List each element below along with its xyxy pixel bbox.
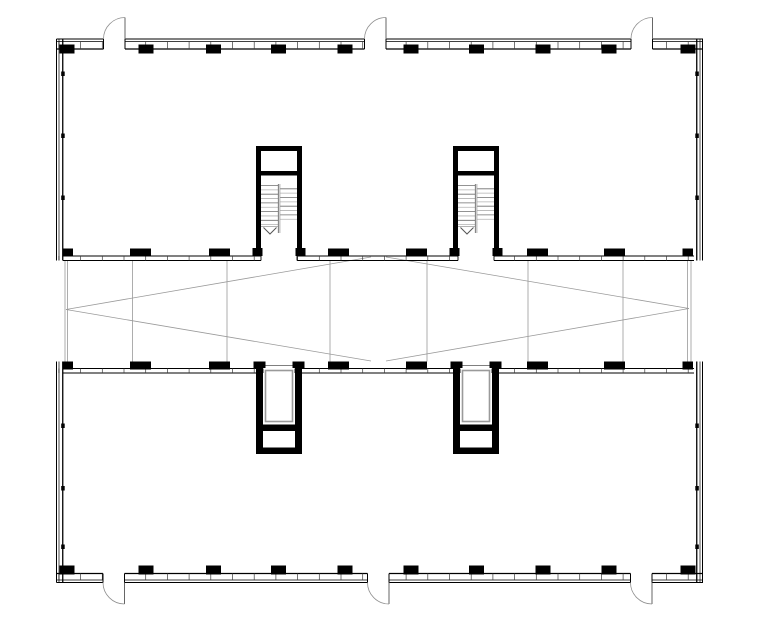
bottom-wing-north-column-pier — [63, 362, 74, 370]
stair-core-east-vestibule-wall — [458, 171, 494, 176]
elevator-core-west-north-wall-stub — [254, 362, 266, 369]
stair-core-west-west-wall — [256, 146, 261, 256]
top-wing-south-column-pier — [604, 249, 625, 257]
top-wing-north-column-pier — [60, 45, 75, 54]
stair-core-east-west-wall — [453, 146, 458, 256]
side-wall-mullion-tick — [61, 545, 64, 550]
sheet-background — [0, 0, 760, 633]
top-wing-south-column-pier — [63, 249, 74, 257]
door-bottom-center-opening — [368, 572, 389, 584]
top-wing-north-column-pier — [681, 45, 696, 54]
door-bottom-right-opening — [631, 572, 652, 584]
top-wing-north-column-pier — [469, 45, 484, 54]
bottom-wing-north-column-pier — [527, 362, 548, 370]
top-wing-north-column-pier — [602, 45, 617, 54]
top-wing-south-column-pier — [328, 249, 349, 257]
door-top-center-opening — [365, 38, 386, 50]
elevator-core-west-north-wall-stub — [293, 362, 305, 369]
bottom-wing-north-column-pier — [130, 362, 151, 370]
top-wing-south-column-pier — [527, 249, 548, 257]
top-wing-north-column-pier — [206, 45, 221, 54]
bottom-wing-south-column-pier — [338, 566, 353, 575]
top-wing-south-column-pier — [683, 249, 694, 257]
stair-core-west-south-wall-stub — [253, 248, 263, 256]
bottom-wing-north-column-pier — [328, 362, 349, 370]
elevator-core-west-south-wall — [256, 448, 302, 455]
stair-core-west-vestibule-wall — [261, 171, 297, 176]
bottom-wing-south-column-pier — [139, 566, 154, 575]
side-wall-mullion-tick — [61, 134, 64, 139]
elevator-core-west-lift-shaft — [266, 371, 293, 422]
top-wing-north-column-pier — [338, 45, 353, 54]
floor-plan — [0, 0, 760, 633]
side-wall-mullion-tick — [61, 486, 64, 491]
top-wing-north-column-pier — [536, 45, 551, 54]
bottom-wing-south-column-pier — [404, 566, 419, 575]
stair-core-west-east-wall — [297, 146, 302, 256]
side-wall-mullion-tick — [695, 486, 699, 491]
top-wing-south-column-pier — [406, 249, 427, 257]
top-wing-south-column-pier — [209, 249, 230, 257]
bottom-wing-north-column-pier — [209, 362, 230, 370]
bottom-wing-north-column-pier — [683, 362, 694, 370]
side-wall-mullion-tick — [695, 134, 699, 139]
top-wing-south-column-pier — [130, 249, 151, 257]
stair-core-west-south-wall-stub — [296, 248, 306, 256]
side-wall-mullion-tick — [61, 424, 64, 429]
top-wing-north-column-pier — [139, 45, 154, 54]
bottom-wing-south-column-pier — [681, 566, 696, 575]
bottom-wing-north-column-pier — [604, 362, 625, 370]
stair-core-west-north-wall — [256, 146, 302, 151]
door-bottom-left-opening — [104, 572, 125, 584]
drawing-sheet — [0, 0, 760, 633]
bottom-wing-south-column-pier — [271, 566, 286, 575]
side-wall-mullion-tick — [61, 196, 64, 201]
elevator-core-east-west-wall — [453, 364, 460, 454]
side-wall-mullion-tick — [61, 72, 64, 77]
elevator-core-east-lift-shaft — [463, 371, 490, 422]
elevator-core-east-north-wall-stub — [451, 362, 463, 369]
door-top-left-opening — [104, 38, 125, 50]
elevator-core-west-divider-wall — [263, 425, 295, 432]
elevator-core-west-west-wall — [256, 364, 263, 454]
stair-core-east-north-wall — [453, 146, 499, 151]
bottom-wing-south-column-pier — [469, 566, 484, 575]
top-wing-north-column-pier — [271, 45, 286, 54]
bottom-wing-north-column-pier — [406, 362, 427, 370]
elevator-core-east-east-wall — [492, 364, 499, 454]
elevator-core-east-divider-wall — [460, 425, 492, 432]
elevator-core-west-east-wall — [295, 364, 302, 454]
stair-core-east-south-wall-stub — [450, 248, 460, 256]
elevator-core-east-north-wall-stub — [490, 362, 502, 369]
side-wall-mullion-tick — [695, 196, 699, 201]
side-wall-mullion-tick — [695, 545, 699, 550]
side-wall-mullion-tick — [695, 72, 699, 77]
bottom-wing-south-column-pier — [602, 566, 617, 575]
elevator-core-east-south-wall — [453, 448, 499, 455]
bottom-wing-south-column-pier — [60, 566, 75, 575]
stair-core-east-south-wall-stub — [493, 248, 503, 256]
stair-core-east-east-wall — [494, 146, 499, 256]
top-wing-north-column-pier — [404, 45, 419, 54]
bottom-wing-south-column-pier — [206, 566, 221, 575]
door-top-right-opening — [632, 38, 653, 50]
side-wall-mullion-tick — [695, 424, 699, 429]
bottom-wing-south-column-pier — [536, 566, 551, 575]
